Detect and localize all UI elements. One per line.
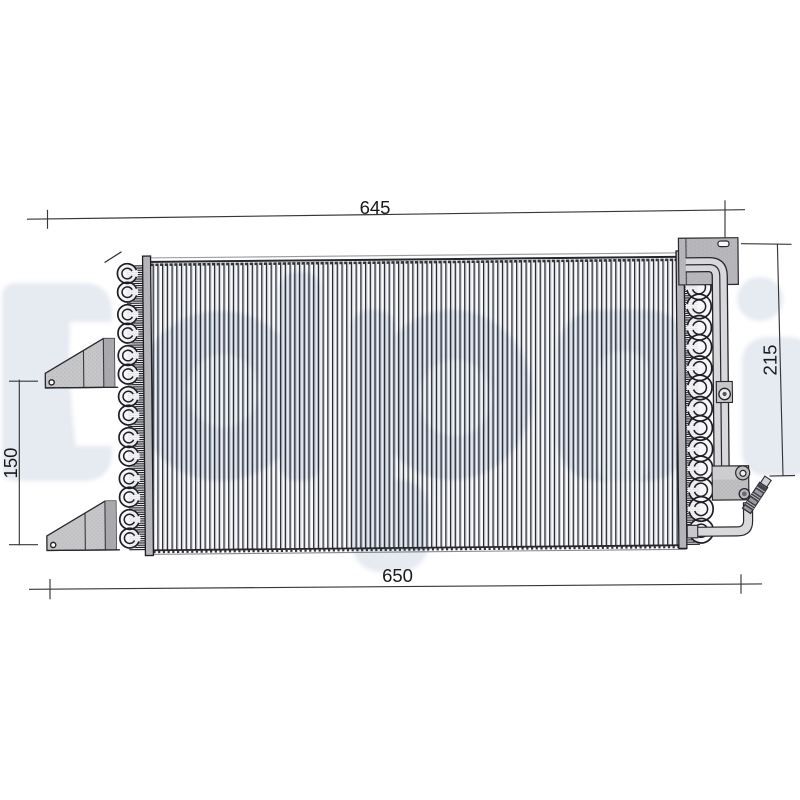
- svg-text:650: 650: [382, 565, 413, 586]
- svg-text:150: 150: [0, 448, 21, 479]
- svg-text:645: 645: [360, 197, 391, 218]
- svg-text:215: 215: [760, 345, 781, 376]
